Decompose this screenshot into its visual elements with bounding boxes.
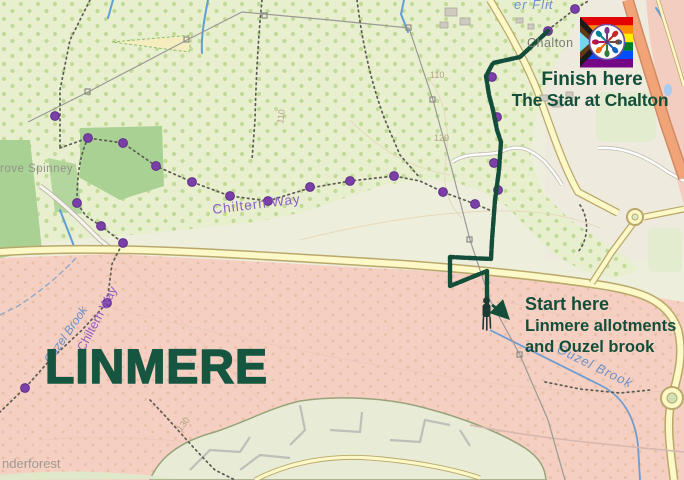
contour-label-120: 120 (434, 133, 449, 143)
start-line1: Start here (525, 294, 609, 314)
map-image: rove Spinney Chiltern Way Chiltern Way O… (0, 0, 684, 480)
logo-spoon-star (592, 27, 622, 57)
linmere-title: LINMERE (45, 341, 268, 394)
field-patch (648, 228, 682, 272)
finish-line2: The Star at Chalton (512, 90, 669, 110)
pride-flag-logo (580, 17, 633, 68)
contour-label-110: 110 (275, 109, 287, 125)
wanderforest-label: nderforest (2, 456, 61, 471)
chalton-label: Chalton (527, 36, 574, 50)
grove-spinney-label: rove Spinney (0, 163, 73, 175)
map-canvas: rove Spinney Chiltern Way Chiltern Way O… (0, 0, 684, 480)
start-line2: Linmere allotments (525, 317, 676, 335)
river-flit-label: er Flit (514, 0, 554, 12)
contour-label-110b: 110 (430, 70, 444, 80)
finish-line1: Finish here (541, 69, 642, 90)
start-line3: and Ouzel brook (525, 338, 655, 356)
